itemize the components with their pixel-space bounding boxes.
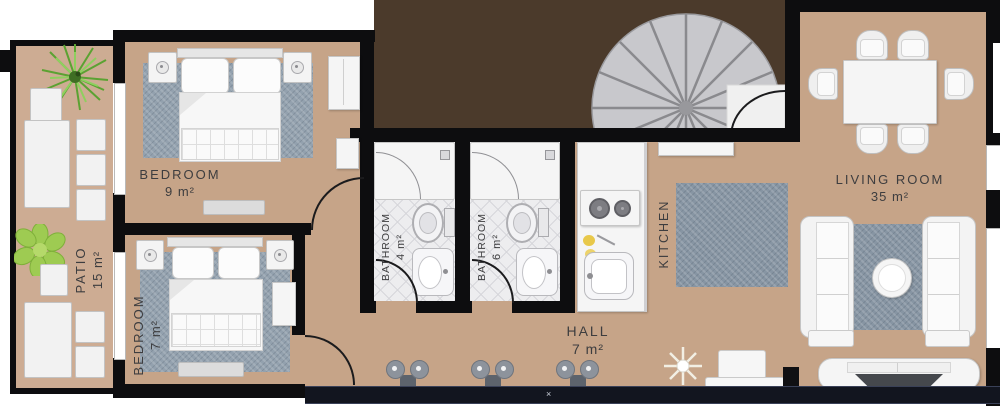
right-wall-2 bbox=[986, 190, 1000, 228]
bedroom9-bottom-wall bbox=[125, 223, 311, 235]
living-top-wall bbox=[785, 0, 1000, 12]
nightstand bbox=[136, 240, 164, 270]
dining-chair bbox=[808, 68, 838, 100]
sofa bbox=[922, 216, 976, 338]
dresser bbox=[336, 138, 359, 169]
dining-chair bbox=[897, 30, 929, 60]
spiral-staircase bbox=[374, 0, 785, 130]
right-wall-thin bbox=[986, 43, 993, 133]
living-west-wall bbox=[785, 0, 800, 142]
nightstand bbox=[283, 52, 312, 83]
patio-chair bbox=[40, 264, 68, 296]
patio-chair bbox=[30, 88, 62, 124]
patio-chair bbox=[76, 189, 106, 221]
ceiling-light-icon bbox=[662, 345, 704, 387]
sideboard bbox=[718, 350, 766, 379]
toilet bbox=[412, 203, 444, 243]
kitchen-top-counter bbox=[658, 142, 734, 156]
tv-icon bbox=[855, 374, 943, 386]
bedroom7-label: BEDROOM 7 m² bbox=[131, 285, 161, 385]
patio-bedroom-wall-a bbox=[113, 42, 125, 83]
bedroom-bench bbox=[203, 200, 265, 215]
toilet bbox=[506, 203, 538, 243]
dining-chair bbox=[856, 124, 888, 154]
dining-table bbox=[843, 60, 937, 124]
bedroom-bench bbox=[178, 362, 244, 377]
toilet-tank bbox=[538, 208, 549, 237]
double-bed bbox=[177, 48, 283, 163]
dining-chair bbox=[944, 68, 974, 100]
top-right-corner bbox=[986, 0, 1000, 43]
kitchen-label: KITCHEN bbox=[656, 189, 670, 279]
patio-glass-door-2 bbox=[114, 252, 126, 360]
stove bbox=[580, 190, 640, 226]
shower-head-icon bbox=[440, 150, 450, 160]
shower-head-icon bbox=[545, 150, 555, 160]
cabinet bbox=[272, 282, 296, 326]
kitchen-sink bbox=[584, 252, 634, 300]
living-room-label: LIVING ROOM 35 m² bbox=[810, 172, 970, 206]
wall-shelf bbox=[925, 330, 970, 347]
patio-wall-left bbox=[10, 40, 16, 394]
bathroom6-label: BATHROOM 6 m² bbox=[476, 199, 504, 295]
patio-table bbox=[24, 302, 72, 378]
patio-chair bbox=[76, 154, 106, 186]
bottom-wall bbox=[305, 386, 1000, 404]
patio-chair bbox=[75, 346, 105, 378]
right-window-1 bbox=[986, 145, 1000, 192]
wardrobe bbox=[328, 56, 360, 110]
dining-chair bbox=[897, 124, 929, 154]
wall-stub bbox=[0, 50, 13, 72]
sofa bbox=[800, 216, 854, 338]
bedroom7-bottom-wall bbox=[113, 384, 305, 398]
dining-chair bbox=[856, 30, 888, 60]
patio-bedroom-wall-b bbox=[113, 193, 125, 252]
wall-shelf bbox=[808, 330, 854, 347]
speaker-block bbox=[783, 367, 799, 387]
bedroom9-label: BEDROOM 9 m² bbox=[110, 167, 250, 201]
coffee-table bbox=[872, 258, 912, 298]
bottom-wall-mark: × bbox=[546, 390, 551, 399]
wall-top-main bbox=[113, 30, 375, 42]
patio-label: PATIO 15 m² bbox=[73, 222, 103, 318]
nightstand bbox=[266, 240, 294, 270]
bathroom-sink bbox=[412, 248, 454, 296]
bedroom7-doorway-floor bbox=[292, 335, 305, 384]
patio-wall-bottom bbox=[10, 388, 115, 394]
patio-chair bbox=[76, 119, 106, 151]
upper-void bbox=[374, 0, 785, 130]
bathroom4-label: BATHROOM 4 m² bbox=[380, 199, 408, 295]
right-window-2 bbox=[986, 228, 1000, 350]
nightstand bbox=[148, 52, 177, 83]
right-wall-1 bbox=[986, 133, 1000, 145]
hall-label: HALL 7 m² bbox=[518, 322, 658, 358]
toilet-tank bbox=[444, 208, 455, 237]
bathroom6-doorway bbox=[472, 301, 512, 313]
bathroom4-doorway bbox=[376, 301, 416, 313]
kitchen-rug bbox=[676, 183, 788, 287]
bathroom-sink bbox=[516, 248, 558, 296]
double-bed bbox=[167, 237, 263, 352]
floor-plan: × BEDROOM 9 m² PATIO 15 m² BEDROOM 7 m² … bbox=[0, 0, 1000, 406]
patio-table bbox=[24, 120, 70, 208]
